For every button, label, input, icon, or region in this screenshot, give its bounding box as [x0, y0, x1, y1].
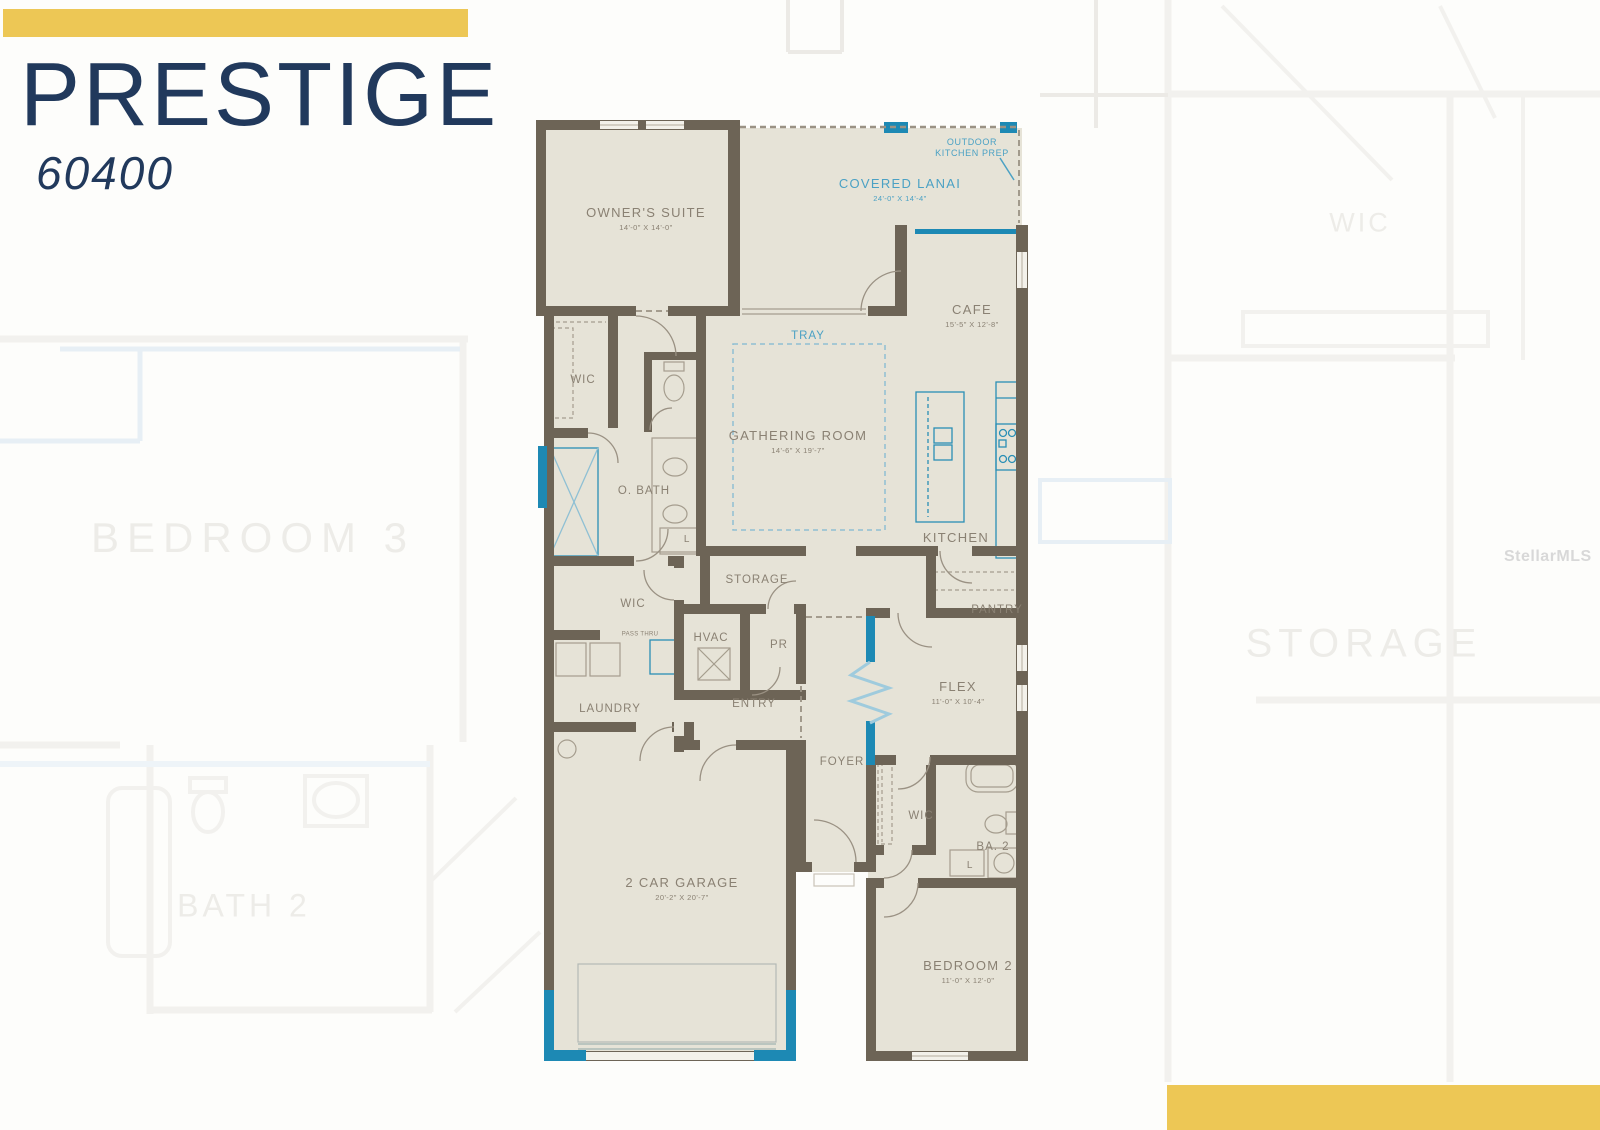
porch-cutout [796, 874, 866, 1056]
brand-bar-top [3, 9, 468, 37]
brand-bar-bottom [1167, 1085, 1600, 1130]
page-title: PRESTIGE [20, 50, 499, 140]
model-number: 60400 [36, 150, 174, 196]
stellar-mls-watermark: StellarMLS [1504, 548, 1592, 566]
floorplan-drawing [0, 0, 1600, 1130]
floorplan-page: BEDROOM 3 BATH 2 WIC STORAGE [0, 0, 1600, 1130]
